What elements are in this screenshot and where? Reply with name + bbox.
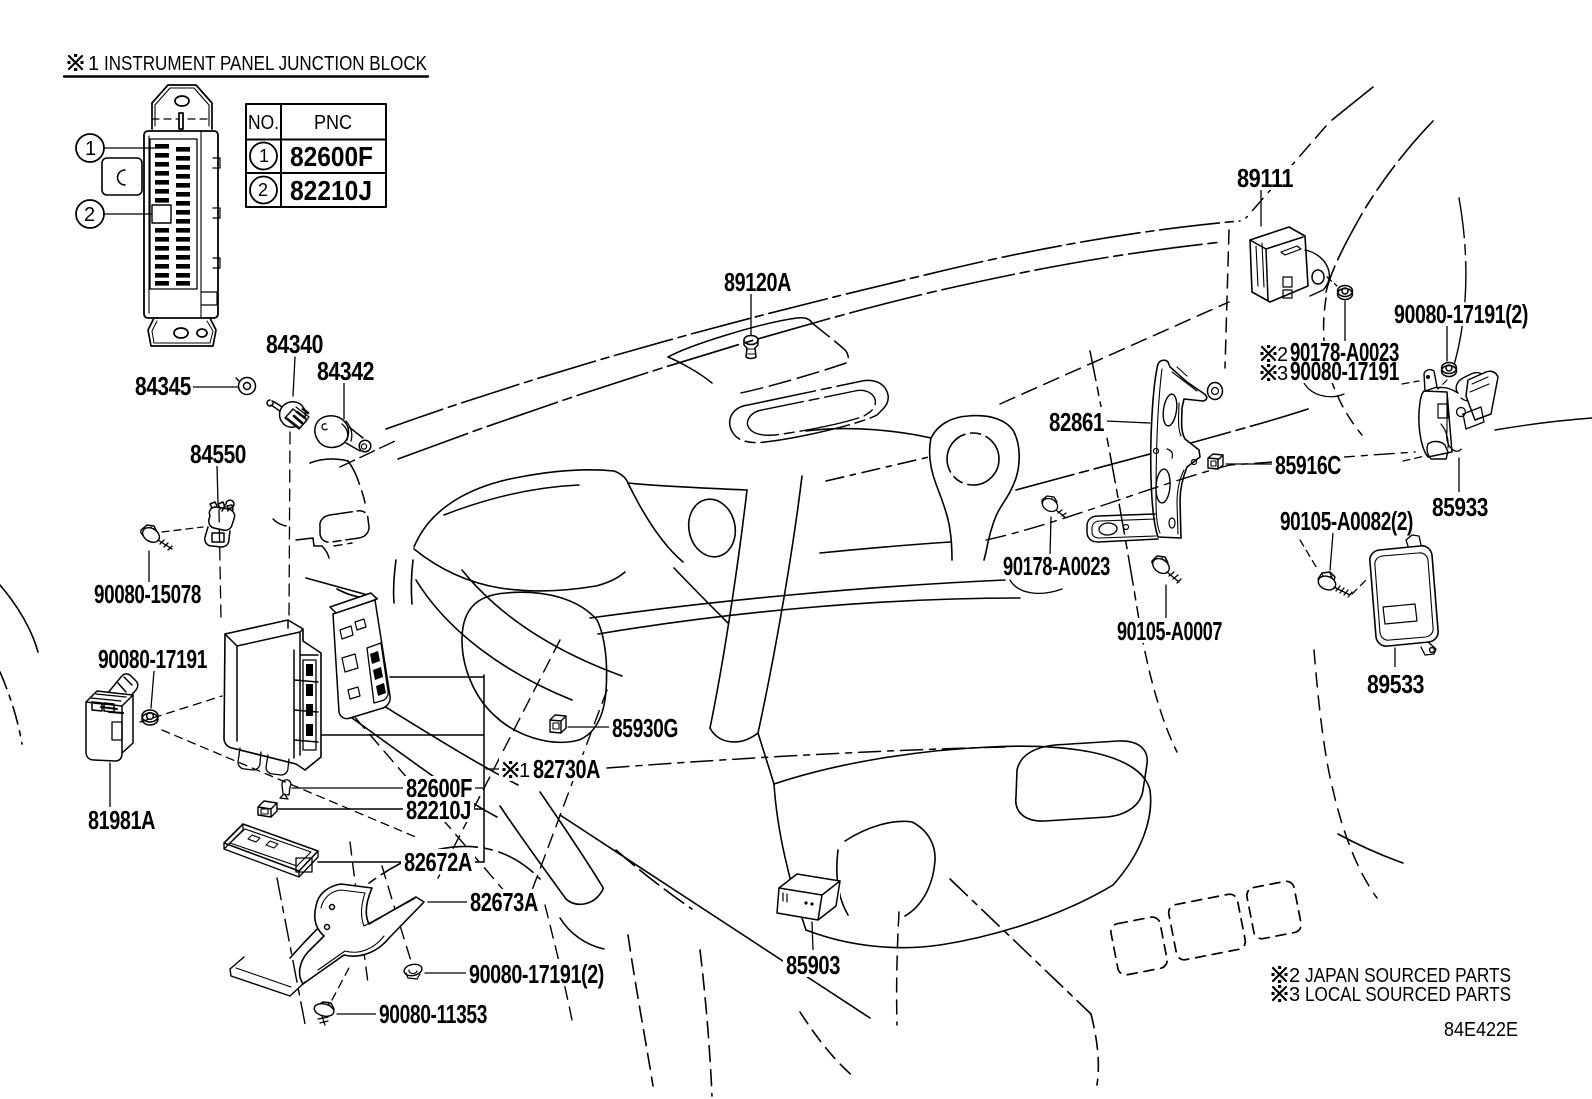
svg-text:90080-17191(2): 90080-17191(2) <box>469 959 604 989</box>
svg-text:82672A: 82672A <box>404 847 473 877</box>
svg-text:3: 3 <box>1289 984 1300 1006</box>
svg-text:85916C: 85916C <box>1275 450 1342 480</box>
svg-text:2: 2 <box>84 204 95 226</box>
svg-text:84550: 84550 <box>190 439 246 469</box>
svg-text:85930G: 85930G <box>612 713 678 743</box>
svg-text:84E422E: 84E422E <box>1444 1019 1518 1041</box>
svg-text:LOCAL SOURCED PARTS: LOCAL SOURCED PARTS <box>1305 984 1511 1006</box>
svg-text:89533: 89533 <box>1367 669 1424 699</box>
svg-text:90178-A0023: 90178-A0023 <box>1003 551 1110 581</box>
svg-text:2: 2 <box>258 180 268 200</box>
svg-text:NO.: NO. <box>248 112 279 134</box>
svg-text:82210J: 82210J <box>290 175 372 206</box>
svg-text:82210J: 82210J <box>406 795 471 825</box>
svg-text:85933: 85933 <box>1432 492 1488 522</box>
svg-text:90080-17191(2): 90080-17191(2) <box>1394 299 1528 329</box>
svg-text:90105-A0082(2): 90105-A0082(2) <box>1280 506 1413 536</box>
svg-text:1: 1 <box>259 146 269 166</box>
svg-text:PNC: PNC <box>314 112 352 134</box>
svg-text:90105-A0007: 90105-A0007 <box>1117 616 1222 646</box>
svg-text:90080-17191: 90080-17191 <box>1290 356 1399 386</box>
svg-text:82861: 82861 <box>1049 407 1104 437</box>
svg-text:1: 1 <box>519 760 530 782</box>
svg-text:89120A: 89120A <box>724 267 792 297</box>
svg-text:89111: 89111 <box>1237 163 1293 193</box>
svg-text:1: 1 <box>88 53 99 75</box>
svg-text:90080-17191: 90080-17191 <box>98 644 207 674</box>
svg-text:3: 3 <box>1277 363 1288 385</box>
svg-text:82600F: 82600F <box>290 141 373 172</box>
svg-text:90080-15078: 90080-15078 <box>94 579 201 609</box>
svg-text:84345: 84345 <box>135 371 191 401</box>
svg-text:INSTRUMENT PANEL JUNCTION BLOC: INSTRUMENT PANEL JUNCTION BLOCK <box>104 53 428 75</box>
svg-text:81981A: 81981A <box>88 805 156 835</box>
svg-text:1: 1 <box>85 138 96 160</box>
svg-text:82673A: 82673A <box>470 887 539 917</box>
svg-text:82730A: 82730A <box>533 754 601 784</box>
svg-text:90080-11353: 90080-11353 <box>379 999 487 1029</box>
svg-text:85903: 85903 <box>786 950 840 980</box>
svg-text:84342: 84342 <box>317 356 374 386</box>
svg-text:84340: 84340 <box>266 329 323 359</box>
